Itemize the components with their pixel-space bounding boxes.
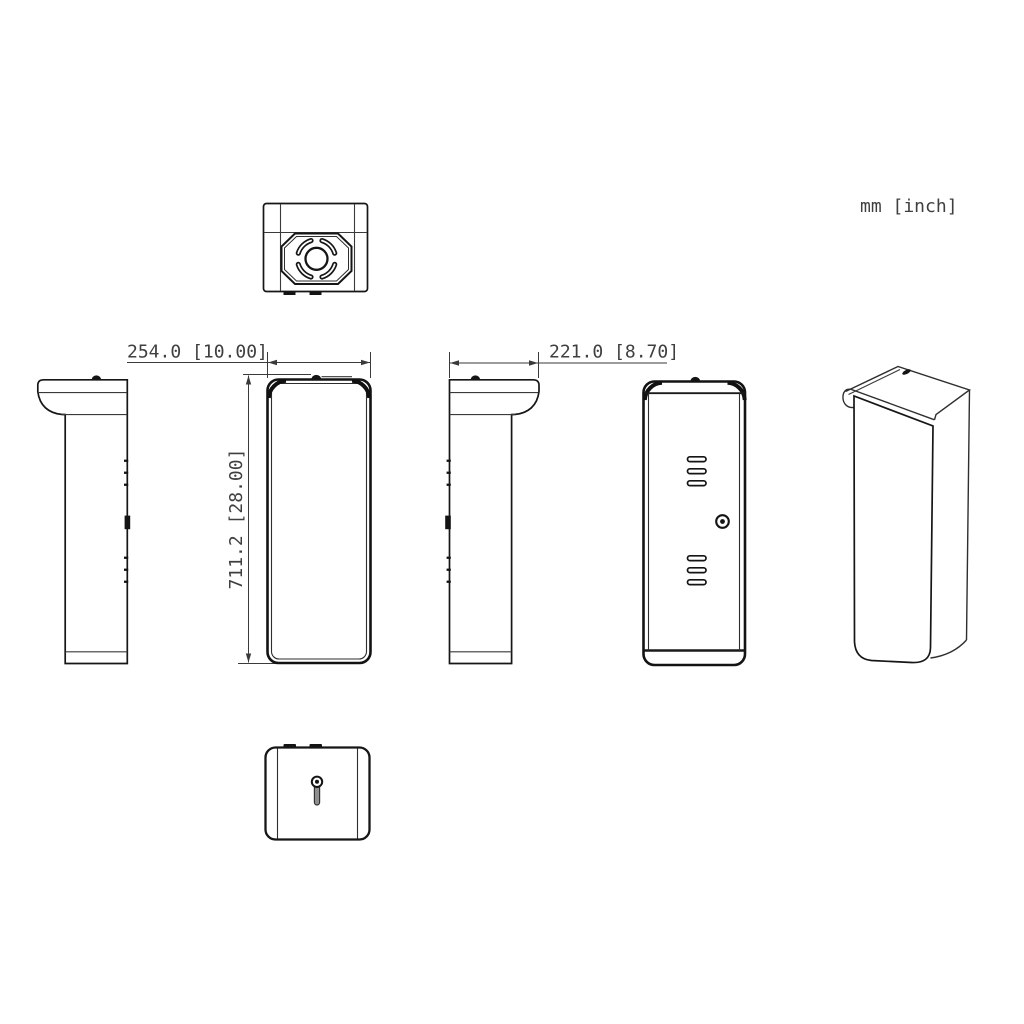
view-back <box>644 377 746 665</box>
screw-mark <box>311 375 321 380</box>
view-right-side <box>445 375 539 663</box>
dim-depth-label: 221.0 [8.70] <box>549 342 679 363</box>
units-label: mm [inch] <box>860 196 958 217</box>
dim-width-label: 254.0 [10.00] <box>127 342 268 363</box>
drawing-svg: mm [inch] 254.0 [10.00] <box>0 0 1024 1024</box>
screw-mark <box>690 377 700 382</box>
lock <box>716 515 729 528</box>
mounting-tab <box>310 292 322 296</box>
view-left-side <box>38 375 130 663</box>
view-front <box>268 375 371 663</box>
speaker-center-circle <box>306 248 328 270</box>
screw-mark <box>92 375 102 379</box>
lock-edge-mark <box>125 516 131 530</box>
vent-slots-lower <box>688 556 707 585</box>
view-perspective <box>843 367 970 663</box>
dimension-depth: 221.0 [8.70] <box>450 342 680 379</box>
dimension-drawing: mm [inch] 254.0 [10.00] <box>0 0 1024 1024</box>
vent-slots-upper <box>688 457 707 486</box>
dim-height-label: 711.2 [28.00] <box>226 449 247 590</box>
screw-mark <box>471 375 481 379</box>
view-bottom <box>266 744 370 840</box>
view-top <box>264 204 368 296</box>
lock-edge-mark <box>445 516 451 530</box>
mounting-tab <box>284 292 296 296</box>
dimension-width: 254.0 [10.00] <box>127 342 371 379</box>
